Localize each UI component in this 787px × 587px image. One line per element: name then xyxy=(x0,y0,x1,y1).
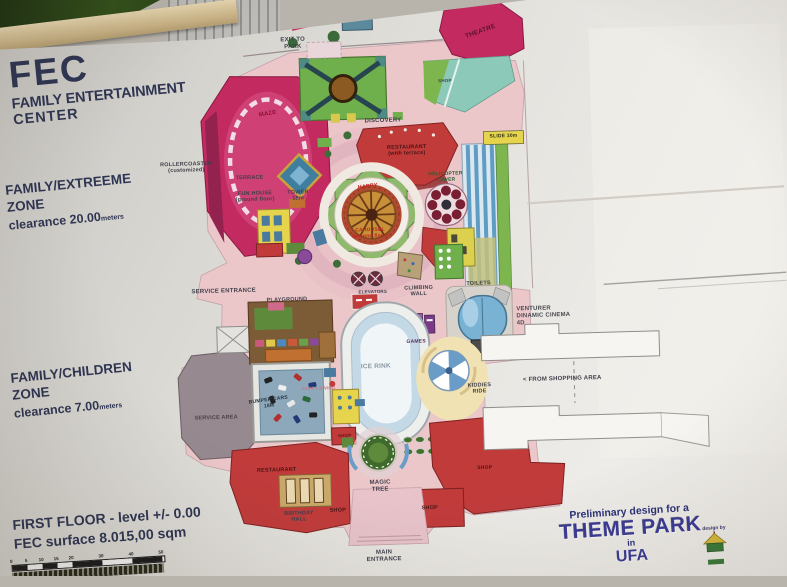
label-bumper-cars: BUMPER CARS 18M xyxy=(249,395,290,412)
label-service-entrance: SERVICE ENTRANCE xyxy=(191,288,256,297)
label-fun-house: FUN HOUSE (ground floor) xyxy=(235,190,274,204)
label-playground: PLAYGROUND xyxy=(267,296,308,303)
label-slide: SLIDE 30m xyxy=(489,134,517,141)
poster-board: EXIT TO PARKTHEATRESHOPMAZEDISCOVERYREST… xyxy=(0,0,787,576)
label-terrace: TERRACE xyxy=(235,175,263,182)
poster-content: EXIT TO PARKTHEATRESHOPMAZEDISCOVERYREST… xyxy=(0,0,787,587)
label-games: GAMES xyxy=(406,339,425,345)
map-labels-layer: EXIT TO PARKTHEATRESHOPMAZEDISCOVERYREST… xyxy=(0,0,787,587)
label-ice-rink: ICE RINK xyxy=(361,363,391,371)
label-climbing-wall: CLIMBING WALL xyxy=(404,285,433,298)
label-helicopter-tower: HELICOPTER TOWER xyxy=(428,171,463,183)
label-birthday-hall: BIRTHDAY HALL xyxy=(284,510,314,523)
label-theatre: THEATRE xyxy=(464,23,496,41)
label-exit-to-park: EXIT TO PARK xyxy=(280,37,305,51)
label-restaurant-terrace: RESTAURANT (with terrace) xyxy=(387,144,427,158)
label-tower-18m: TOWER 18m xyxy=(287,189,309,202)
label-main-entrance: MAIN ENTRANCE xyxy=(367,549,402,564)
label-maze: MAZE xyxy=(258,110,277,120)
label-kiddies-ride: KIDDIES RIDE xyxy=(467,382,491,395)
label-shop-bottom-left: SHOP xyxy=(330,507,347,514)
label-carousel-bottom: CAROUSEL (second floor) xyxy=(352,228,388,241)
label-shop-far-right: SHOP xyxy=(477,466,492,472)
label-restaurant-bottom: RESTAURANT xyxy=(257,467,297,474)
label-elevators: ELEVATORS xyxy=(358,289,387,295)
label-shop-top: SHOP xyxy=(438,78,452,84)
label-magic-tree: MAGIC TREE xyxy=(370,479,391,493)
label-discovery: DISCOVERY xyxy=(364,117,401,125)
label-toilets: TOILETS xyxy=(466,280,491,287)
label-from-shopping: < FROM SHOPPING AREA xyxy=(523,375,602,384)
label-shop-mid: SHOP xyxy=(338,433,352,439)
label-rollercoaster: ROLLERCOASTER (customized) xyxy=(160,161,212,175)
label-service-area: SERVICE AREA xyxy=(194,414,238,422)
label-happy-swing: HAPPY SWING xyxy=(301,385,335,391)
label-venturer-cinema: VENTURER DINAMIC CINEMA 4D xyxy=(516,305,570,327)
label-shop-bottom-right: SHOP xyxy=(422,505,439,512)
label-carousel-top: HAPPY xyxy=(358,183,379,192)
